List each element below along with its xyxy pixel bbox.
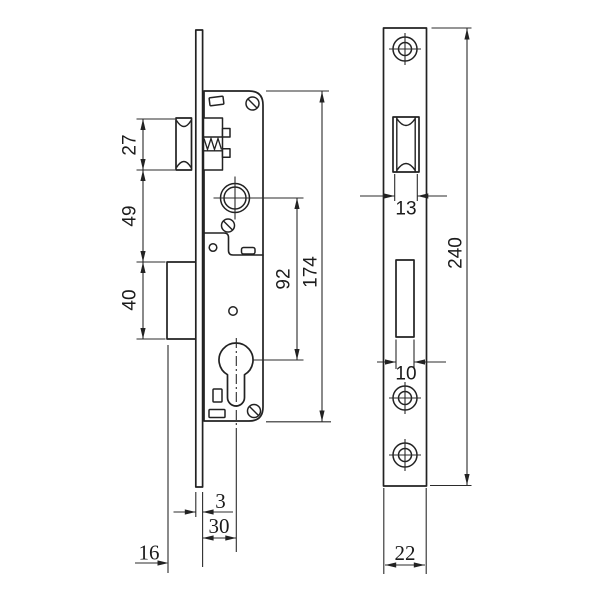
latch-opening	[393, 117, 419, 172]
dim-faceplate-length: 240	[446, 237, 467, 269]
dim-case-height: 174	[301, 256, 322, 288]
dim-deadbolt-height: 40	[120, 289, 141, 310]
case-hole-center	[229, 307, 237, 315]
dim-faceplate-width: 22	[395, 541, 416, 565]
screw-top-icon	[246, 97, 259, 110]
case-top-hole	[209, 96, 224, 106]
dim-faceplate-thickness: 3	[215, 489, 226, 513]
dim-16-deadbolt-throw: 16	[135, 345, 169, 573]
faceplate-front	[384, 28, 427, 486]
case-hole-small	[209, 244, 217, 252]
lock-technical-drawing: 27 49 40 92 174 3 30 1	[0, 0, 600, 600]
dim-backset: 30	[209, 514, 230, 538]
screw-bottom-icon	[248, 405, 261, 418]
deadbolt	[167, 262, 196, 339]
case-slot-lower-v	[213, 389, 222, 402]
dim-latch-to-deadbolt: 49	[120, 205, 141, 226]
dim-22-faceplate-width: 22	[384, 488, 426, 574]
side-view	[167, 30, 263, 487]
faceplate-side	[196, 30, 203, 487]
dim-deadbolt-throw: 16	[139, 541, 160, 565]
dim-deadbolt-opening-width: 10	[395, 364, 416, 385]
front-view	[384, 28, 427, 486]
dim-174: 174	[266, 91, 331, 422]
dim-latch-opening-width: 13	[395, 199, 416, 220]
deadbolt-opening	[396, 260, 414, 337]
dim-follower-to-cylinder: 92	[274, 268, 295, 289]
screw-middle-icon	[222, 219, 235, 232]
latch-bolt	[176, 118, 192, 170]
drawing-svg: 27 49 40 92 174 3 30 1	[0, 0, 600, 600]
dim-240-faceplate-length: 240	[430, 28, 472, 486]
case-slot-small	[242, 248, 256, 255]
dim-latch-height: 27	[120, 134, 141, 155]
case-slot-lower-h	[209, 410, 225, 418]
